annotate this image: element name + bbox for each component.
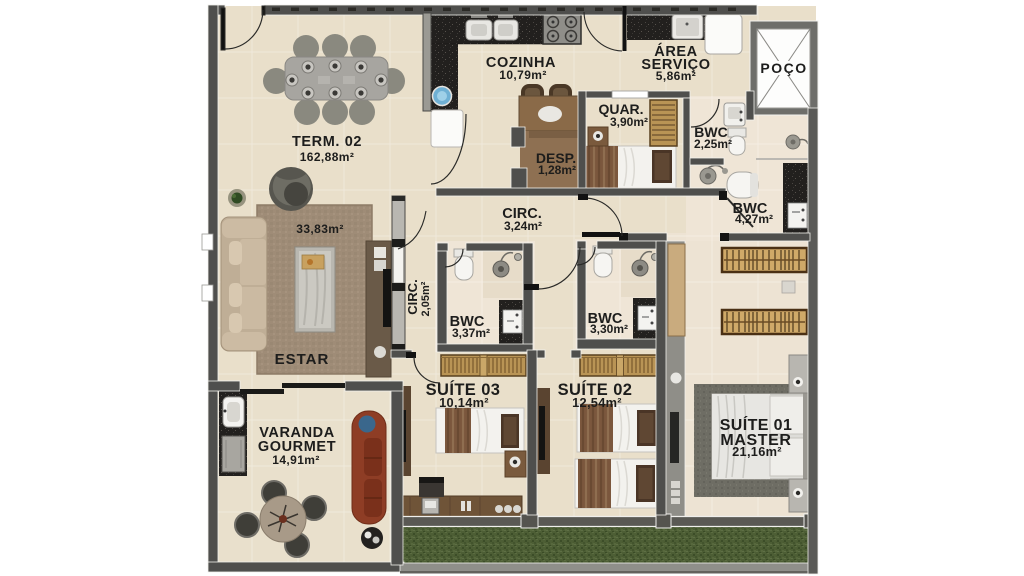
svg-text:3,90m²: 3,90m²: [610, 115, 648, 129]
svg-text:4,27m²: 4,27m²: [735, 212, 773, 226]
svg-text:5,86m²: 5,86m²: [656, 69, 696, 83]
svg-text:10,79m²: 10,79m²: [499, 68, 547, 82]
svg-text:3,30m²: 3,30m²: [590, 322, 628, 336]
svg-text:TERM. 02: TERM. 02: [292, 134, 362, 150]
svg-text:3,37m²: 3,37m²: [452, 326, 490, 340]
svg-text:33,83m²: 33,83m²: [296, 222, 344, 236]
svg-text:CIRC.: CIRC.: [405, 279, 420, 314]
svg-text:12,54m²: 12,54m²: [572, 395, 622, 410]
svg-text:162,88m²: 162,88m²: [300, 150, 355, 164]
svg-text:3,24m²: 3,24m²: [504, 219, 542, 233]
svg-text:21,16m²: 21,16m²: [732, 444, 782, 459]
svg-text:1,28m²: 1,28m²: [538, 163, 576, 177]
svg-text:10,14m²: 10,14m²: [439, 395, 489, 410]
svg-text:2,25m²: 2,25m²: [694, 137, 732, 151]
svg-text:14,91m²: 14,91m²: [272, 453, 320, 467]
svg-text:POÇO: POÇO: [760, 60, 807, 76]
svg-text:ESTAR: ESTAR: [275, 351, 330, 368]
svg-text:2,05m²: 2,05m²: [420, 281, 432, 316]
